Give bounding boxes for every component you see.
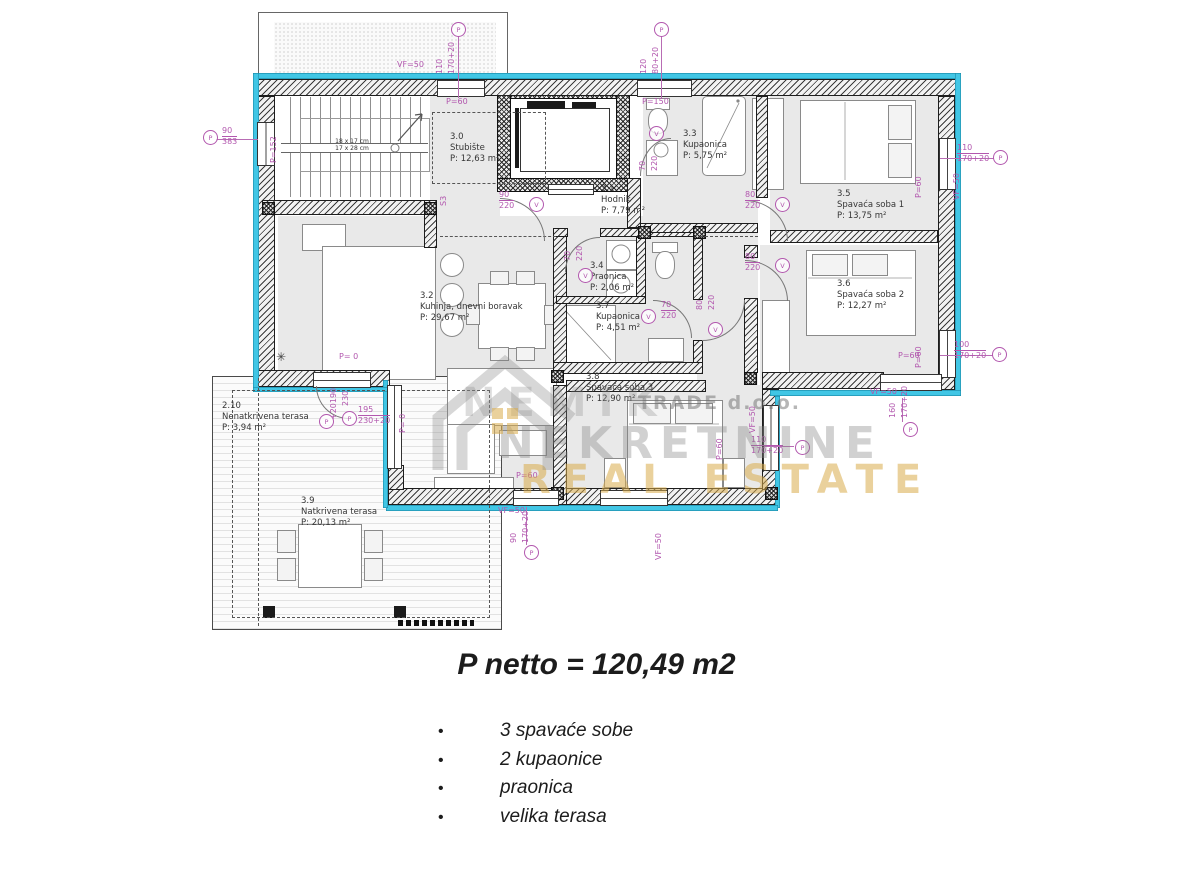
- room-label: 3.0StubišteP: 12,63 m²: [450, 132, 499, 165]
- dim-marker-p: P: [524, 545, 539, 560]
- floor-plan: ✳: [0, 0, 1193, 660]
- room-label: 3.3KupaonicaP: 5,75 m²: [683, 129, 727, 162]
- dimension-label: 80220: [745, 252, 760, 272]
- dim-marker-p: P: [992, 347, 1007, 362]
- stair-dimensions-note: 18 x 17 cm 17 x 28 cm: [322, 138, 382, 152]
- dim-marker-p: P: [451, 22, 466, 37]
- dimension-label: VF=50: [870, 387, 897, 397]
- room-label: 3.4PraonicaP: 2,06 m²: [590, 261, 634, 294]
- feature-list: •3 spavaće sobe •2 kupaonice •praonica •…: [438, 720, 633, 834]
- wall-column: [424, 202, 437, 215]
- door-marker-v: V: [578, 268, 593, 283]
- dimension-label: 110170+20: [751, 435, 783, 455]
- wall-bed35-36: [770, 230, 938, 243]
- wall-column: [693, 226, 706, 239]
- wall-stair-bottom: [262, 200, 437, 215]
- dimension-label: P=60: [516, 471, 538, 481]
- wall-column: [744, 372, 757, 385]
- room-label: 3.5Spavaća soba 1P: 13,75 m²: [837, 189, 904, 222]
- list-item: •velika terasa: [438, 806, 633, 835]
- dim-marker-p: P: [203, 130, 218, 145]
- wall-bath33-east: [756, 96, 768, 198]
- door-marker-v: V: [649, 126, 664, 141]
- summary-block: P netto = 120,49 m2 •3 spavaće sobe •2 k…: [0, 648, 1193, 682]
- net-area-title: P netto = 120,49 m2: [0, 648, 1193, 682]
- dimension-label: 70220: [661, 300, 676, 320]
- room-label: 3.9Natkrivena terasaP: 20,13 m²: [301, 496, 377, 529]
- wall-exterior-top: [258, 79, 960, 96]
- room-label: 3.8Spavaća soba 3P: 12,90 m²: [586, 372, 653, 405]
- dim-line: [458, 36, 459, 98]
- dimension-label: 80220: [745, 190, 760, 210]
- room-label: 3.7KupaonicaP: 4,51 m²: [596, 301, 640, 334]
- door-marker-v: V: [775, 258, 790, 273]
- window: [437, 80, 485, 97]
- dimension-label: P=150: [642, 97, 669, 107]
- dimension-label: 110170+20: [957, 143, 989, 163]
- dim-marker-p: P: [319, 414, 334, 429]
- door-marker-v: V: [529, 197, 544, 212]
- dimension-label: VF=50: [397, 60, 424, 70]
- bullet-icon: •: [438, 780, 448, 798]
- dim-marker-p: P: [795, 440, 810, 455]
- elevator-door: [548, 184, 594, 195]
- dimension-label: 100170+20: [954, 340, 986, 360]
- door-marker-v: V: [775, 197, 790, 212]
- bullet-icon: •: [438, 752, 448, 770]
- wall-column: [551, 370, 564, 383]
- dimension-label: 195230+20: [358, 405, 390, 425]
- list-item: •2 kupaonice: [438, 749, 633, 778]
- wall-column: [638, 226, 651, 239]
- dim-marker-p: P: [993, 150, 1008, 165]
- window: [600, 490, 668, 506]
- wall-corridor-bed36-b: [744, 298, 758, 373]
- bullet-icon: •: [438, 723, 448, 741]
- door-marker-v: V: [641, 309, 656, 324]
- room-label: 3.6Spavaća soba 2P: 12,27 m²: [837, 279, 904, 312]
- room-label: 3.2Kuhinja, dnevni boravakP: 29,67 m²: [420, 291, 523, 324]
- dimension-label: P=60: [446, 97, 468, 107]
- dimension-label: 90383: [222, 126, 237, 146]
- window: [637, 80, 692, 97]
- facade-highlight-top: [258, 73, 960, 79]
- door-marker-v: V: [708, 322, 723, 337]
- list-item: •praonica: [438, 777, 633, 806]
- dimension-label: 90220: [499, 190, 514, 210]
- dim-marker-p: P: [903, 422, 918, 437]
- wall-column: [765, 487, 778, 500]
- wall-praonica-east: [636, 237, 646, 297]
- dim-marker-p: P: [342, 411, 357, 426]
- dimension-label: P= 0: [339, 352, 358, 362]
- wall-bed38-bottom: [560, 488, 778, 505]
- elevator-wall-right: [616, 85, 630, 192]
- terrace-door: [513, 490, 559, 506]
- list-item: •3 spavaće sobe: [438, 720, 633, 749]
- room-label: 2.10Nenatkrivena terasaP: 3,94 m²: [222, 401, 309, 434]
- wall-bed36-bottom: [762, 372, 884, 389]
- wall-column: [262, 202, 275, 215]
- dim-marker-p: P: [654, 22, 669, 37]
- floor-plan-page: ✳: [0, 0, 1193, 884]
- room-label: 3.1HodnikP: 7,79 m²: [601, 184, 645, 217]
- facade-highlight-left: [253, 73, 259, 391]
- dim-line: [661, 36, 662, 98]
- bullet-icon: •: [438, 809, 448, 827]
